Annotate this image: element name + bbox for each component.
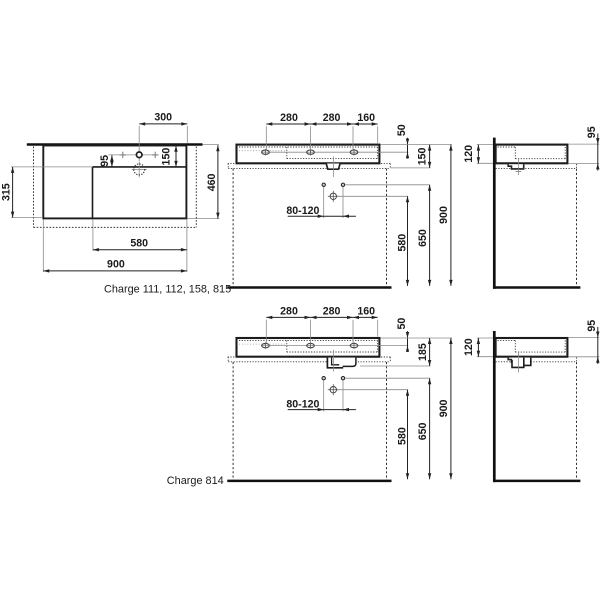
svg-text:185: 185 bbox=[417, 343, 429, 361]
svg-text:580: 580 bbox=[130, 237, 148, 249]
svg-text:460: 460 bbox=[206, 173, 218, 191]
svg-text:900: 900 bbox=[107, 259, 125, 271]
svg-text:Charge 814: Charge 814 bbox=[167, 475, 224, 487]
svg-text:Charge 111, 112, 158, 815: Charge 111, 112, 158, 815 bbox=[104, 283, 231, 295]
svg-text:150: 150 bbox=[161, 148, 173, 166]
svg-text:150: 150 bbox=[417, 147, 429, 165]
svg-text:95: 95 bbox=[99, 155, 111, 167]
svg-text:315: 315 bbox=[0, 183, 12, 201]
svg-text:300: 300 bbox=[154, 112, 172, 124]
